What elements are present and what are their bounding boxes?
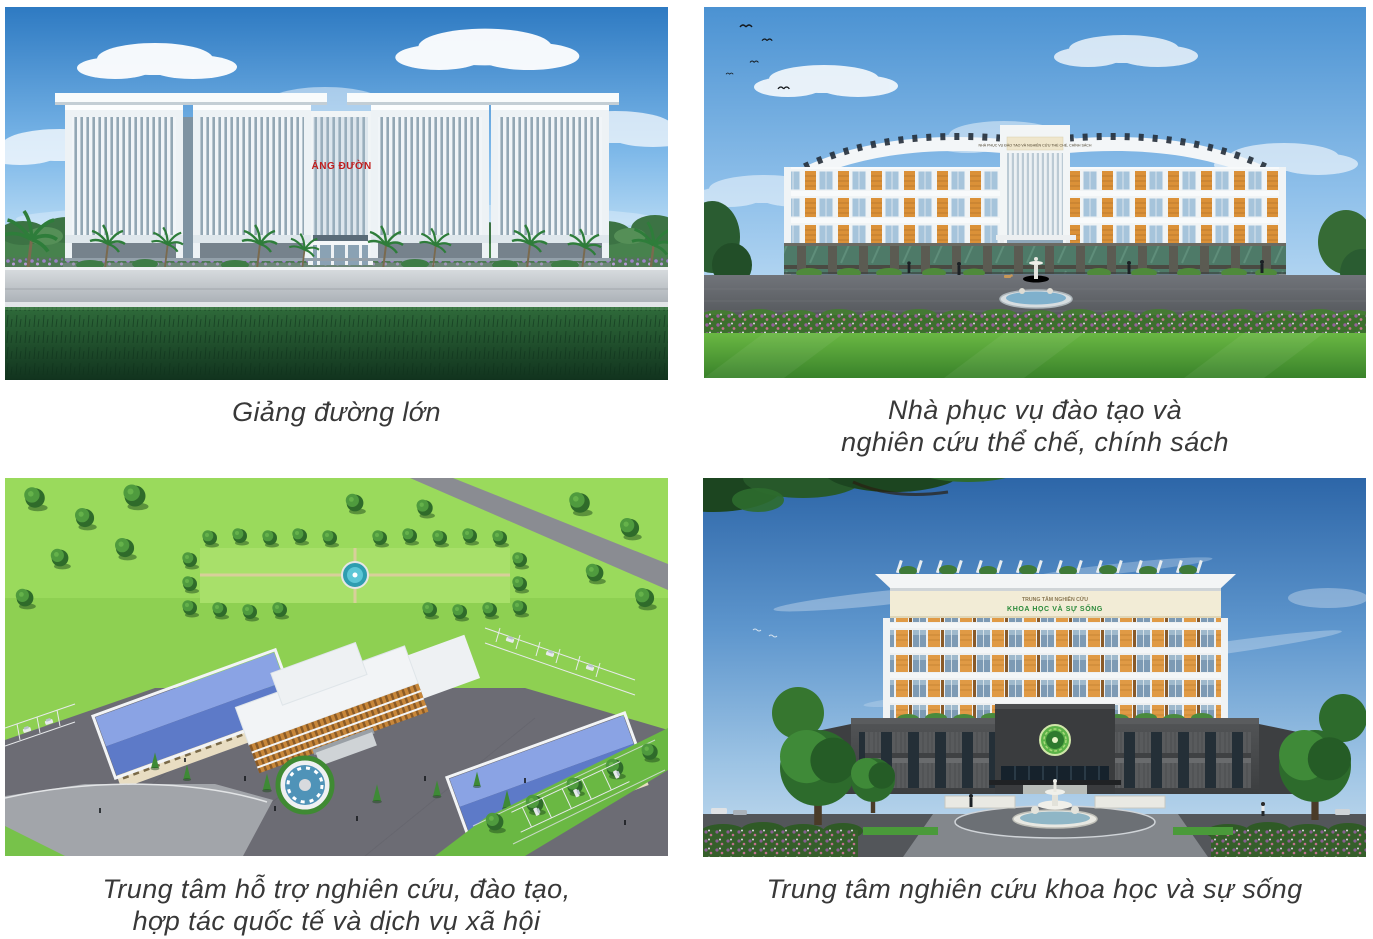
- caption-training-policy-research: Nhà phục vụ đào tạo và nghiên cứu thể ch…: [704, 394, 1366, 458]
- figure-support-center-aerial-image: [5, 478, 668, 856]
- caption-line: hợp tác quốc tế và dịch vụ xã hội: [133, 906, 541, 936]
- upper-floors: [890, 618, 1221, 718]
- caption-line: Trung tâm nghiên cứu khoa học và sự sống: [766, 874, 1302, 904]
- building-sign-text: GIẢNG ĐƯỜNG: [300, 159, 380, 172]
- figure-training-policy-research-image: NHÀ PHỤC VỤ ĐÀO TẠO VÀ NGHIÊN CỨU THỂ CH…: [704, 7, 1366, 378]
- right-wing: [1068, 167, 1280, 245]
- logo-badge: [1040, 725, 1070, 755]
- caption-line: nghiên cứu thể chế, chính sách: [841, 427, 1229, 457]
- sign-band: [890, 591, 1221, 618]
- grass-field: [5, 307, 668, 380]
- caption-line: Nhà phục vụ đào tạo và: [888, 395, 1182, 425]
- lawn: [704, 333, 1366, 378]
- left-wing: [790, 167, 1002, 245]
- page: GIẢNG ĐƯỜNG: [0, 0, 1373, 939]
- caption-life-science-center: Trung tâm nghiên cứu khoa học và sự sống: [703, 873, 1366, 905]
- caption-line: Giảng đường lớn: [232, 397, 441, 427]
- rendering-training-policy-research: NHÀ PHỤC VỤ ĐÀO TẠO VÀ NGHIÊN CỨU THỂ CH…: [704, 7, 1366, 378]
- building-sign-text: NHÀ PHỤC VỤ ĐÀO TẠO VÀ NGHIÊN CỨU THỂ CH…: [979, 143, 1092, 148]
- fountain-plaza: [278, 758, 332, 812]
- bottom-road: [5, 784, 273, 856]
- caption-lecture-hall: Giảng đường lớn: [5, 396, 668, 428]
- building: NHÀ PHỤC VỤ ĐÀO TẠO VÀ NGHIÊN CỨU THỂ CH…: [784, 125, 1286, 276]
- figure-life-science-center-image: TRUNG TÂM NGHIÊN CỨU KHOA HỌC VÀ SỰ SỐNG: [703, 478, 1366, 857]
- building-sign-line1: TRUNG TÂM NGHIÊN CỨU: [1022, 595, 1088, 603]
- garden-parterre: [200, 548, 510, 603]
- figure-lecture-hall-image: GIẢNG ĐƯỜNG: [5, 7, 668, 380]
- road: [5, 267, 668, 307]
- rendering-support-center-aerial: [5, 478, 668, 856]
- rendering-life-science-center: TRUNG TÂM NGHIÊN CỨU KHOA HỌC VÀ SỰ SỐNG: [703, 478, 1366, 857]
- caption-line: Trung tâm hỗ trợ nghiên cứu, đào tạo,: [103, 874, 571, 904]
- flower-hedge: [704, 309, 1366, 333]
- caption-support-center: Trung tâm hỗ trợ nghiên cứu, đào tạo, hợ…: [5, 873, 668, 937]
- rendering-lecture-hall: GIẢNG ĐƯỜNG: [5, 7, 668, 380]
